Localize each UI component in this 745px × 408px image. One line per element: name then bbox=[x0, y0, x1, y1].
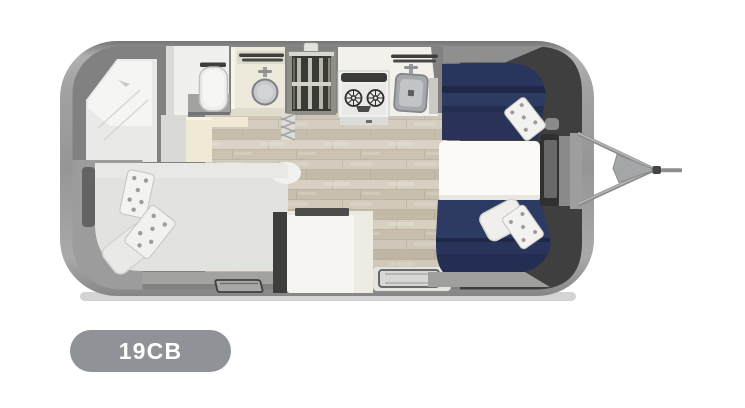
svg-text:19CB: 19CB bbox=[119, 338, 183, 364]
